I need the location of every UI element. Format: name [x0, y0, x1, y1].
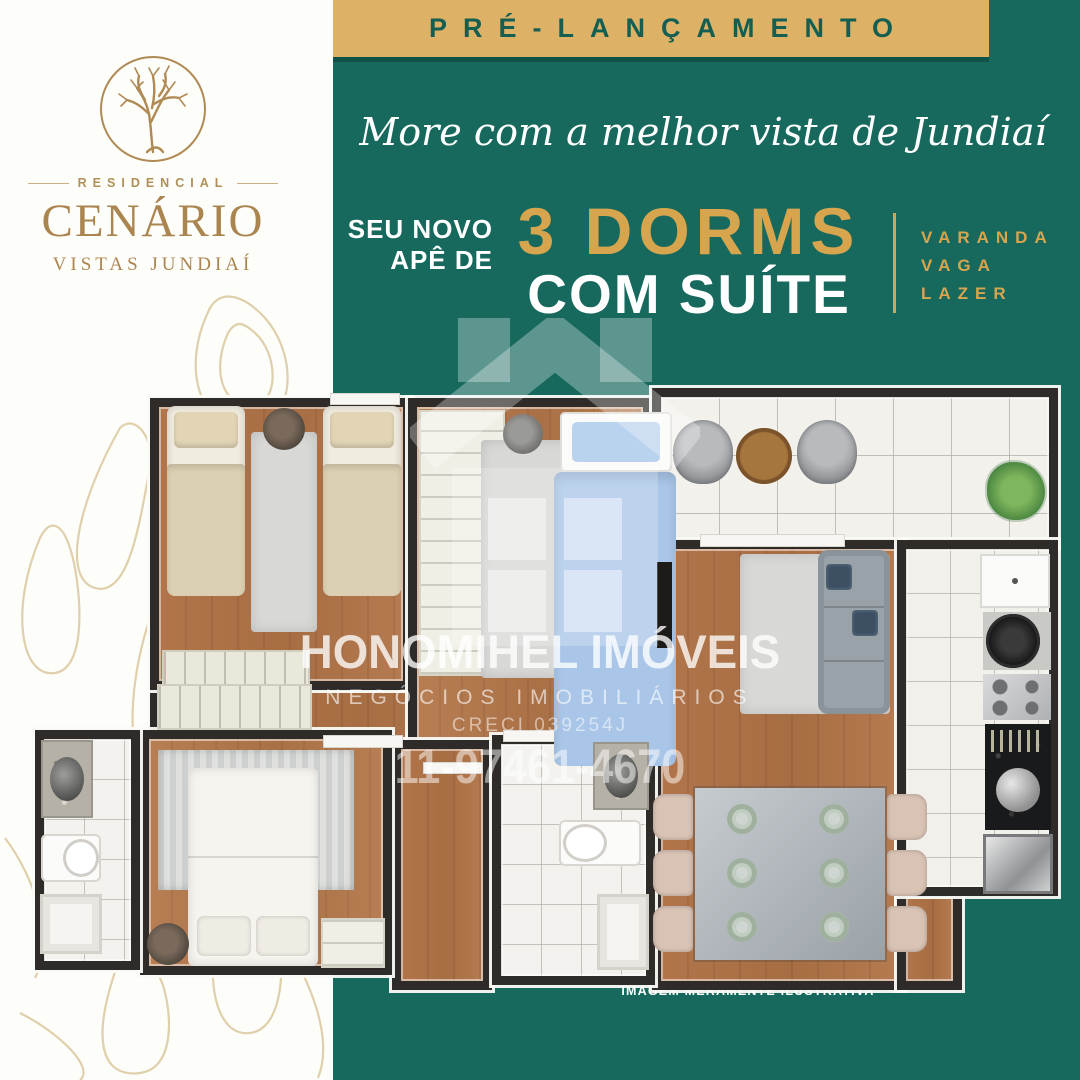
balcony-round-table — [736, 428, 792, 484]
dish-rack — [991, 730, 1045, 752]
house-watermark-icon — [410, 318, 700, 648]
kitchen-sink-cabinet — [980, 554, 1050, 608]
ceiling-fan-bedroom-twin — [263, 408, 305, 450]
rug-bedroom-twin — [251, 432, 317, 632]
offer-suite: COM SUÍTE — [503, 267, 875, 322]
brand-logo: RESIDENCIAL CENÁRIO VISTAS JUNDIAÍ — [28, 52, 278, 276]
door-bedroom-twin — [330, 393, 400, 405]
oven — [983, 612, 1051, 670]
corridor-suite — [392, 740, 492, 990]
place-setting — [819, 912, 849, 942]
bathroom1-toilet — [41, 834, 101, 882]
blanket — [167, 464, 245, 596]
sink-basin — [604, 754, 638, 798]
oven-top — [986, 614, 1040, 668]
offer-prefix-line2: APÊ DE — [341, 245, 493, 276]
sink-basin — [50, 757, 84, 801]
offer-prefix-line1: SEU NOVO — [341, 214, 493, 245]
headline: More com a melhor vista de Jundiaí — [353, 110, 1053, 154]
bathroom1-counter — [41, 740, 93, 818]
logo-location: VISTAS JUNDIAÍ — [28, 254, 278, 276]
sofa-pillow — [852, 610, 878, 636]
dining-chair — [887, 850, 927, 896]
offer-main: 3 DORMS COM SUÍTE — [503, 200, 875, 322]
closet-bedroom-twin — [162, 650, 310, 686]
double-bed — [188, 768, 318, 966]
perk-varanda: VARANDA — [921, 224, 1054, 252]
sofa-pillow — [826, 564, 852, 590]
pillow — [256, 916, 310, 956]
ceiling-fan-suite — [147, 923, 189, 965]
door-bedroom-blue — [423, 762, 483, 774]
offer-divider-line — [893, 213, 896, 313]
kitchen-sink-basin — [996, 768, 1040, 812]
perk-vaga: VAGA — [921, 252, 1054, 280]
place-setting — [819, 858, 849, 888]
pillow — [330, 412, 394, 448]
twin-bed-right — [323, 406, 401, 596]
dining-chair — [887, 906, 927, 952]
prelaunch-banner: PRÉ-LANÇAMENTO — [333, 0, 989, 57]
toilet-bowl — [563, 824, 607, 862]
offer-prefix: SEU NOVO APÊ DE — [341, 214, 493, 276]
logo-category-row: RESIDENCIAL — [28, 176, 278, 190]
kitchen-counter — [985, 724, 1051, 830]
offer-dorms: 3 DORMS — [503, 200, 875, 263]
sofa — [818, 550, 890, 714]
real-estate-flyer: RESIDENCIAL CENÁRIO VISTAS JUNDIAÍ PRÉ-L… — [0, 0, 1080, 1080]
hall-closet — [157, 684, 312, 730]
bathroom2-counter — [593, 742, 649, 810]
place-setting — [727, 912, 757, 942]
place-setting — [727, 804, 757, 834]
bathroom1-shower — [40, 894, 102, 954]
dining-table — [695, 788, 885, 960]
potted-plant — [987, 462, 1045, 520]
pillow — [174, 412, 238, 448]
prelaunch-banner-label: PRÉ-LANÇAMENTO — [413, 13, 909, 44]
logo-rule-right — [237, 183, 278, 184]
perk-lazer: LAZER — [921, 280, 1054, 308]
dining-chair — [653, 906, 693, 952]
dining-chair — [653, 794, 693, 840]
dining-chair — [887, 794, 927, 840]
door-suite — [323, 735, 403, 748]
blanket — [323, 464, 401, 596]
twin-bed-left — [167, 406, 245, 596]
refrigerator — [983, 834, 1053, 894]
pillow — [197, 916, 251, 956]
door-bathroom2 — [503, 730, 558, 742]
dining-chair — [653, 850, 693, 896]
bathroom2-shower — [597, 894, 649, 970]
place-setting — [819, 804, 849, 834]
blanket-fold — [188, 856, 318, 858]
door-balcony-slider — [700, 534, 845, 547]
faucet — [1012, 578, 1018, 584]
tree-in-circle-icon — [97, 52, 209, 168]
toilet-bowl — [63, 839, 99, 877]
logo-category: RESIDENCIAL — [78, 176, 229, 190]
logo-rule-left — [28, 183, 69, 184]
perks-list: VARANDA VAGA LAZER — [921, 224, 1054, 308]
cooktop — [983, 674, 1051, 720]
logo-name: CENÁRIO — [28, 194, 278, 248]
balcony-armchair-right — [797, 420, 857, 484]
place-setting — [727, 858, 757, 888]
wardrobe-suite — [321, 918, 385, 968]
bathroom2-toilet — [559, 820, 641, 866]
